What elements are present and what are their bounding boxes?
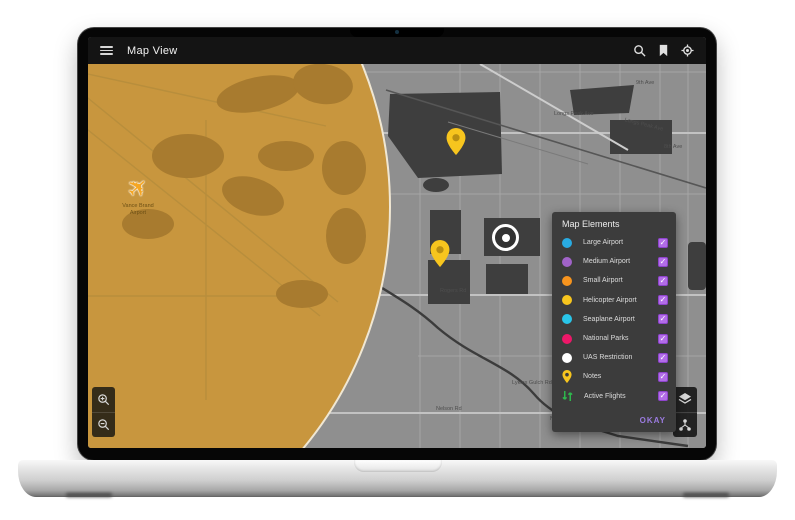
checkbox-seaplane-airport[interactable] — [658, 314, 668, 324]
active-flights-icon — [562, 390, 573, 402]
checkbox-medium-airport[interactable] — [658, 257, 668, 267]
laptop-notch — [350, 28, 444, 37]
seaplane-airport-dot — [562, 314, 572, 324]
legend-row-active-flights[interactable]: Active Flights — [552, 387, 676, 406]
small-airport-dot — [562, 276, 572, 286]
legend-row-large-airport[interactable]: Large Airport — [552, 233, 676, 252]
legend-row-small-airport[interactable]: Small Airport — [552, 271, 676, 290]
checkbox-large-airport[interactable] — [658, 238, 668, 248]
airport-label: Airport — [98, 210, 178, 217]
zoom-in-button[interactable] — [92, 387, 115, 412]
laptop-foot — [683, 493, 729, 497]
checkbox-national-parks[interactable] — [658, 334, 668, 344]
street-label: Nelson Rd — [436, 406, 462, 412]
webcam-icon — [395, 30, 399, 34]
map-canvas[interactable]: 9th Ave Longs Peak Ave Longs Peak Ave 8t… — [88, 64, 706, 448]
checkbox-active-flights[interactable] — [658, 391, 668, 401]
street-label: 8th Ave — [664, 144, 682, 150]
panel-title: Map Elements — [552, 212, 676, 233]
layers-icon — [678, 392, 692, 406]
street-label: Lykins Gulch Rd — [512, 380, 552, 386]
national-parks-dot — [562, 334, 572, 344]
legend-row-uas-restriction[interactable]: UAS Restriction — [552, 348, 676, 367]
hamburger-menu-icon[interactable] — [100, 46, 113, 55]
page-title: Map View — [127, 45, 178, 57]
checkbox-notes[interactable] — [658, 372, 668, 382]
app-bar: Map View — [88, 37, 706, 64]
helicopter-airport-dot — [562, 295, 572, 305]
laptop-lid-groove — [354, 460, 442, 472]
note-pin-icon — [562, 370, 572, 383]
map-layer-controls — [673, 387, 697, 437]
okay-button[interactable]: OKAY — [640, 416, 666, 425]
zoom-in-icon — [97, 393, 110, 406]
laptop-foot — [66, 493, 112, 497]
note-pin[interactable] — [446, 128, 466, 155]
search-icon[interactable] — [633, 44, 646, 57]
device-hub-icon — [678, 418, 692, 432]
laptop-base — [18, 460, 777, 497]
street-label: Rogers Rd — [440, 288, 466, 294]
app-screen: Map View — [88, 37, 706, 448]
checkbox-uas-restriction[interactable] — [658, 353, 668, 363]
laptop-mockup: Map View — [0, 0, 795, 520]
legend-row-medium-airport[interactable]: Medium Airport — [552, 252, 676, 271]
legend-row-seaplane-airport[interactable]: Seaplane Airport — [552, 310, 676, 329]
zoom-out-icon — [97, 418, 110, 431]
large-airport-dot — [562, 238, 572, 248]
zoom-controls — [92, 387, 115, 437]
street-label: 9th Ave — [636, 80, 654, 86]
legend-row-national-parks[interactable]: National Parks — [552, 329, 676, 348]
laptop-screen-bezel: Map View — [78, 28, 716, 460]
layers-button[interactable] — [673, 387, 697, 412]
note-pin[interactable] — [430, 240, 450, 267]
checkbox-small-airport[interactable] — [658, 276, 668, 286]
airport-marker[interactable]: ✈ Vance Brand Airport — [98, 176, 178, 218]
legend-row-notes[interactable]: Notes — [552, 367, 676, 386]
map-elements-panel: Map Elements Large Airport Medium Airpor… — [552, 212, 676, 432]
legend-row-helicopter-airport[interactable]: Helicopter Airport — [552, 291, 676, 310]
uas-restriction-dot — [562, 353, 572, 363]
bookmark-icon[interactable] — [657, 44, 670, 57]
medium-airport-dot — [562, 257, 572, 267]
street-label: Longs Peak Ave — [554, 111, 594, 117]
my-location-icon[interactable] — [681, 44, 694, 57]
zoom-out-button[interactable] — [92, 413, 115, 438]
device-hub-button[interactable] — [673, 413, 697, 438]
selected-location-marker[interactable] — [492, 224, 519, 251]
airplane-icon: ✈ — [122, 172, 154, 205]
checkbox-helicopter-airport[interactable] — [658, 295, 668, 305]
